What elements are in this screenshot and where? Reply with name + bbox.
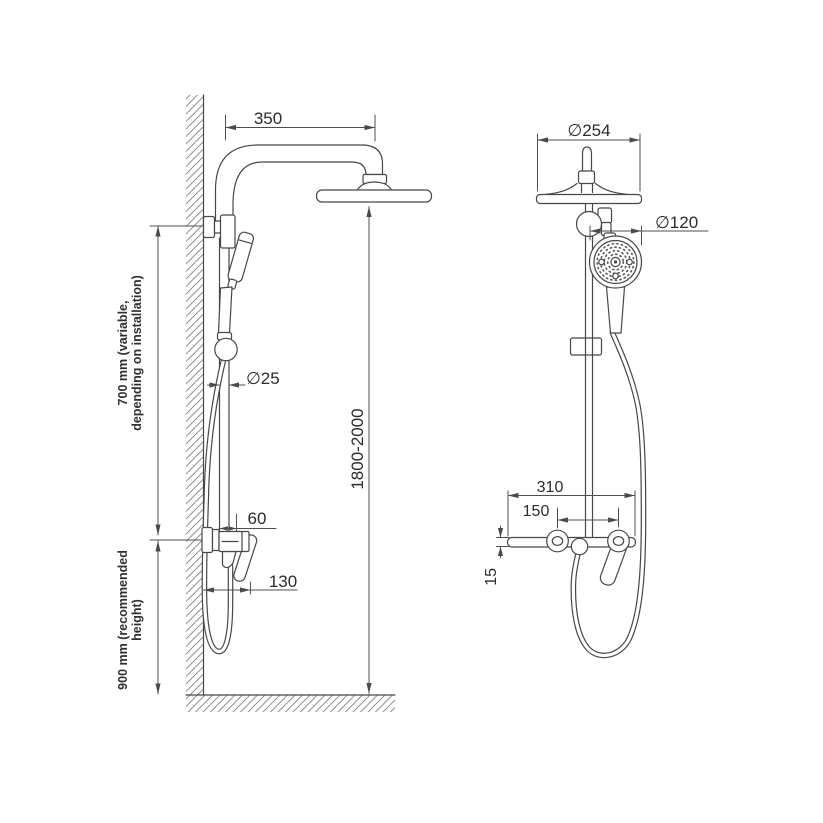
shower-hose-front xyxy=(573,333,643,655)
dim-mixer-depth: 130 xyxy=(204,572,298,594)
hose-outlet-knob xyxy=(571,538,587,554)
face-screw-right xyxy=(627,259,633,265)
hand-shower-front xyxy=(590,236,642,333)
wall-section xyxy=(186,95,204,695)
riser-pipe-side xyxy=(220,238,230,533)
dim-mixer-offset-text: 60 xyxy=(248,509,267,528)
bracket-flange xyxy=(204,217,215,238)
dim-upper-height-text-1: 700 mm (variable, xyxy=(116,301,130,406)
dim-lower-height-text-1: 900 mm (recommended xyxy=(116,550,130,690)
dim-mixer-depth-text: 130 xyxy=(269,572,297,591)
dim-lower-height: 900 mm (recommended height) xyxy=(116,541,161,694)
face-center-dot xyxy=(614,260,617,263)
shower-technical-drawing: 350 ∅25 1800-2000 700 mm (variable, depe… xyxy=(0,0,823,823)
dim-total-height: 1800-2000 xyxy=(348,207,372,694)
dim-lower-height-text-2: height) xyxy=(130,599,144,641)
dim-hand-shower-diameter-text: ∅120 xyxy=(655,213,698,232)
head-stem xyxy=(583,147,592,172)
mixer-wall-flange xyxy=(202,528,213,553)
slider-ball xyxy=(215,338,237,360)
dim-mixer-offset: 60 xyxy=(220,509,277,531)
shower-hose-side xyxy=(204,358,230,652)
head-plate-front xyxy=(537,195,642,204)
face-screw-bottom xyxy=(613,273,619,279)
hand-shower-handle xyxy=(219,287,233,333)
mixer-ring xyxy=(213,530,220,551)
head-nut-front xyxy=(579,171,595,184)
front-view: ∅254 ∅120 310 150 xyxy=(483,121,708,655)
dim-total-height-text: 1800-2000 xyxy=(348,408,367,489)
dim-body-width-text: 310 xyxy=(537,479,564,496)
dim-head-diameter-text: ∅254 xyxy=(567,121,610,140)
shower-arm-side xyxy=(216,145,383,232)
face-screw-left xyxy=(599,259,605,265)
rain-shower-head-front xyxy=(537,147,642,204)
dim-pipe-diameter-text: ∅25 xyxy=(246,369,280,388)
rain-shower-head-side xyxy=(317,175,432,203)
dim-arm-length-text: 350 xyxy=(254,109,282,128)
dim-shelf-thickness-text: 15 xyxy=(483,568,500,586)
dim-arm-length: 350 xyxy=(226,109,376,141)
dim-inlet-spacing: 150 xyxy=(523,503,619,528)
dim-shelf-thickness: 15 xyxy=(483,526,509,586)
bracket-clamp xyxy=(221,215,236,248)
head-disc xyxy=(317,190,432,202)
mixer-hose-connector xyxy=(223,552,237,568)
slider-ball-side xyxy=(215,333,237,361)
dim-upper-height-text-2: depending on installation) xyxy=(130,275,144,431)
floor-section xyxy=(186,695,395,712)
drawing-canvas: 350 ∅25 1800-2000 700 mm (variable, depe… xyxy=(0,0,823,823)
side-view: 350 ∅25 1800-2000 700 mm (variable, depe… xyxy=(116,95,432,712)
hand-shower-handle-front xyxy=(607,287,625,333)
dim-inlet-spacing-text: 150 xyxy=(523,503,550,520)
